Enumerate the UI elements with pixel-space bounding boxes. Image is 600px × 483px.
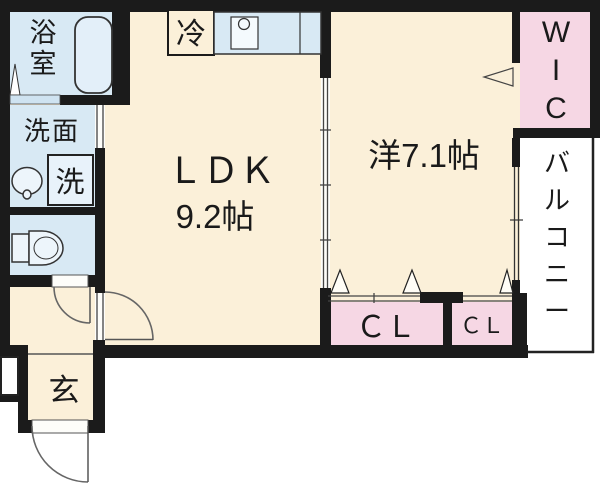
wall-entrance-right (93, 340, 105, 433)
ldk-label: ＬＤＫ (167, 150, 275, 191)
kitchen-faucet-icon (239, 19, 250, 30)
floor-plan-canvas: 浴室 洗面 洗 冷 ＬＤＫ 9.2帖 洋7.1帖 WIC バルコニー ＣＬ ＣＬ… (0, 0, 600, 483)
wall-meterbox-bottom (0, 395, 20, 402)
refrigerator-label: 冷 (176, 18, 206, 51)
wall-window-jamb-bottom (512, 280, 520, 293)
wall-balcony-closet (512, 293, 527, 345)
meter-box (1, 357, 18, 395)
wall-top (0, 0, 600, 12)
wall-closet-header (420, 292, 463, 303)
washroom-label: 洗面 (24, 116, 80, 146)
bathtub-icon (75, 17, 112, 93)
wall-bathroom-right (112, 10, 130, 105)
floor-plan: 浴室 洗面 洗 冷 ＬＤＫ 9.2帖 洋7.1帖 WIC バルコニー ＣＬ ＣＬ… (0, 0, 600, 483)
wall-toilet-bottom-left (8, 275, 52, 287)
wall-bottom (103, 345, 528, 358)
wall-left (0, 0, 10, 357)
washbasin-pedestal (23, 190, 31, 199)
wall-toilet-bottom-right (88, 275, 105, 287)
wall-entrance-bottom-right (88, 420, 105, 433)
entrance-doorway (32, 420, 88, 433)
toilet-tank-icon (12, 234, 29, 262)
wall-washroom-ldk (95, 148, 105, 280)
toilet-doorway (52, 275, 88, 287)
bathroom-sill (10, 95, 60, 104)
wall-window-jamb-top (512, 138, 520, 167)
wall-wic-left (512, 12, 520, 63)
bathroom-label: 浴室 (30, 18, 57, 79)
entrance-label: 玄 (49, 373, 80, 408)
wall-washroom-toilet (8, 207, 95, 215)
partition-slider (321, 78, 330, 288)
kitchen-counter (214, 12, 321, 54)
balcony-label: バルコニー (544, 148, 570, 326)
wall-right (590, 0, 600, 138)
wall-bathroom-bottom (60, 95, 130, 105)
closet-main-label: ＣＬ (356, 311, 416, 344)
washer-label: 洗 (55, 166, 84, 199)
wall-entrance-bottom-left (18, 420, 32, 433)
western-room-label: 洋7.1帖 (368, 137, 480, 174)
wall-entrance-left (18, 345, 28, 433)
closet-sub-label: ＣＬ (460, 313, 504, 338)
wall-wic-bottom (513, 128, 593, 138)
wall-closet-divider (443, 293, 452, 345)
ldk-size-label: 9.2帖 (176, 198, 255, 235)
